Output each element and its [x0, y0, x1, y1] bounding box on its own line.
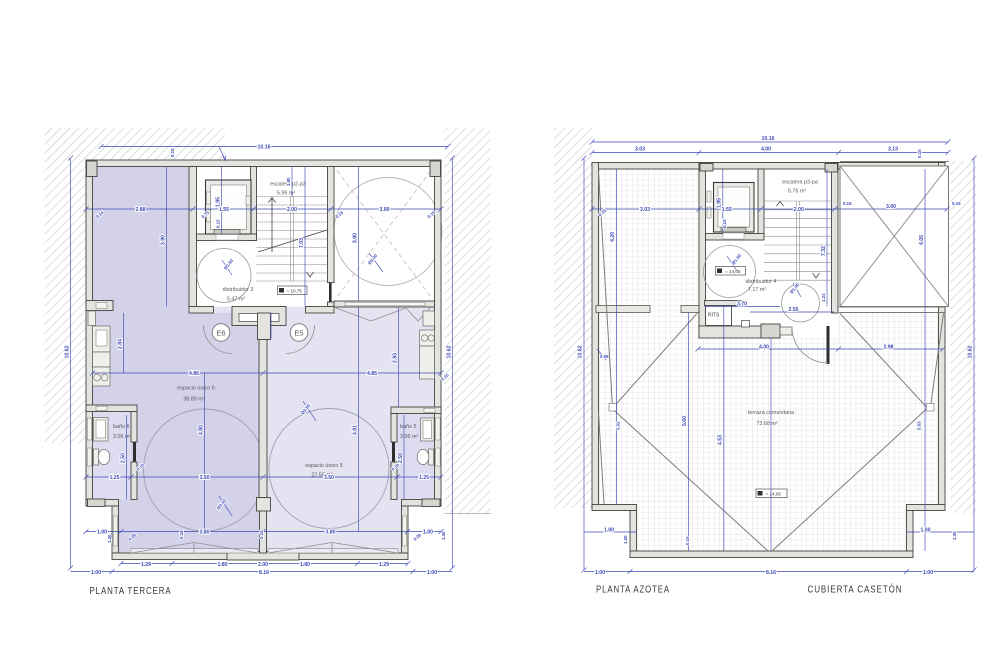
- svg-text:10.62: 10.62: [447, 345, 453, 358]
- svg-text:4.86: 4.86: [189, 371, 199, 377]
- svg-text:7.03: 7.03: [299, 238, 305, 248]
- svg-text:4.00: 4.00: [759, 345, 769, 351]
- svg-text:1.80: 1.80: [300, 562, 310, 568]
- svg-text:2.50: 2.50: [398, 453, 404, 463]
- svg-text:4.81: 4.81: [352, 425, 358, 435]
- svg-text:1.80: 1.80: [217, 562, 227, 568]
- svg-text:3.90: 3.90: [160, 235, 166, 245]
- svg-text:baño 5: baño 5: [400, 424, 417, 430]
- svg-text:2.00: 2.00: [258, 562, 268, 568]
- svg-text:1.30: 1.30: [952, 531, 957, 540]
- svg-text:2.00: 2.00: [794, 207, 804, 213]
- svg-text:2.93: 2.93: [392, 353, 398, 363]
- svg-text:2.00: 2.00: [287, 207, 297, 213]
- svg-text:5.53: 5.53: [917, 421, 922, 430]
- svg-text:= 14,05: = 14,05: [725, 269, 741, 274]
- svg-text:10.16: 10.16: [762, 136, 775, 142]
- svg-text:4.20: 4.20: [610, 232, 616, 242]
- svg-text:8.16: 8.16: [259, 570, 269, 576]
- svg-text:2.98: 2.98: [883, 345, 893, 351]
- svg-text:3.80: 3.80: [325, 529, 335, 535]
- svg-text:1.95: 1.95: [215, 197, 221, 207]
- svg-text:5.52: 5.52: [616, 421, 621, 430]
- svg-text:38.89 m²: 38.89 m²: [183, 397, 204, 403]
- svg-text:PLANTA AZOTEA: PLANTA AZOTEA: [596, 584, 670, 596]
- svg-text:0.15: 0.15: [216, 219, 221, 228]
- svg-text:3.13: 3.13: [888, 147, 898, 153]
- svg-text:2.88: 2.88: [135, 207, 145, 213]
- svg-text:10.62: 10.62: [65, 345, 71, 358]
- svg-text:5.76 m²: 5.76 m²: [788, 189, 806, 195]
- svg-text:escalera p3-pa: escalera p3-pa: [782, 180, 818, 186]
- svg-text:1.95: 1.95: [717, 198, 723, 208]
- svg-text:8.16: 8.16: [766, 570, 776, 576]
- svg-text:1.80: 1.80: [286, 177, 291, 186]
- svg-text:10.62: 10.62: [578, 345, 584, 358]
- svg-text:10.16: 10.16: [258, 145, 271, 151]
- svg-text:1.30: 1.30: [441, 531, 446, 540]
- svg-text:RITS: RITS: [708, 313, 720, 319]
- svg-text:1.55: 1.55: [722, 207, 732, 213]
- svg-text:3.70: 3.70: [737, 302, 747, 308]
- svg-text:7.17 m²: 7.17 m²: [748, 287, 766, 293]
- svg-text:2.55: 2.55: [788, 307, 798, 313]
- svg-text:3.00: 3.00: [379, 207, 389, 213]
- svg-text:1.00: 1.00: [97, 529, 107, 535]
- svg-text:1.00: 1.00: [923, 570, 933, 576]
- svg-text:1.00: 1.00: [423, 529, 433, 535]
- svg-text:73.68 m²: 73.68 m²: [756, 421, 777, 427]
- svg-text:3.03: 3.03: [640, 207, 650, 213]
- svg-text:2.84: 2.84: [117, 339, 123, 349]
- svg-text:4.05: 4.05: [919, 235, 925, 245]
- svg-text:4.80: 4.80: [198, 425, 204, 435]
- svg-text:distribuidor 4: distribuidor 4: [746, 279, 777, 285]
- svg-text:1.00: 1.00: [91, 570, 101, 576]
- svg-text:5.60: 5.60: [682, 416, 688, 426]
- svg-text:0.15: 0.15: [843, 201, 852, 206]
- svg-text:4.00: 4.00: [761, 147, 771, 153]
- svg-text:E6: E6: [216, 328, 225, 337]
- svg-text:1.25: 1.25: [109, 475, 119, 481]
- svg-text:baño 6: baño 6: [113, 424, 130, 430]
- svg-text:PLANTA TERCERA: PLANTA TERCERA: [90, 585, 172, 597]
- svg-text:2.50: 2.50: [120, 453, 126, 463]
- svg-text:0.15: 0.15: [170, 148, 175, 157]
- svg-text:0.15: 0.15: [952, 201, 961, 206]
- svg-text:3.03: 3.03: [635, 147, 645, 153]
- svg-text:1.00: 1.00: [595, 570, 605, 576]
- svg-text:= 14,05: = 14,05: [766, 492, 782, 497]
- svg-text:1.29: 1.29: [379, 562, 389, 568]
- svg-text:4.53: 4.53: [718, 435, 724, 445]
- svg-text:0.15: 0.15: [685, 536, 690, 545]
- svg-text:1.24: 1.24: [821, 293, 826, 302]
- svg-text:0.18: 0.18: [179, 530, 184, 539]
- svg-text:1.25: 1.25: [419, 475, 429, 481]
- svg-text:CUBIERTA CASETÓN: CUBIERTA CASETÓN: [808, 583, 903, 596]
- svg-text:1.29: 1.29: [141, 562, 151, 568]
- svg-text:3.00: 3.00: [886, 204, 896, 210]
- svg-text:4.85: 4.85: [367, 371, 377, 377]
- svg-text:3.06 m²: 3.06 m²: [400, 434, 418, 440]
- svg-text:0.15: 0.15: [259, 530, 264, 539]
- svg-text:espacio único 6: espacio único 6: [177, 386, 214, 392]
- svg-text:1.30: 1.30: [623, 535, 628, 544]
- svg-text:1.00: 1.00: [920, 527, 930, 533]
- svg-text:7.32: 7.32: [821, 246, 827, 256]
- svg-text:1.00: 1.00: [427, 570, 437, 576]
- svg-text:3.80: 3.80: [199, 529, 209, 535]
- svg-text:1.30: 1.30: [107, 534, 112, 543]
- svg-text:E5: E5: [294, 328, 303, 337]
- svg-text:= 10,75: = 10,75: [287, 289, 303, 294]
- svg-text:3.50: 3.50: [199, 475, 209, 481]
- svg-text:distribuidor 3: distribuidor 3: [223, 287, 254, 293]
- svg-text:0.15: 0.15: [917, 149, 922, 158]
- svg-text:10.62: 10.62: [968, 345, 974, 358]
- svg-text:3.90: 3.90: [352, 233, 358, 243]
- svg-text:5.47 m²: 5.47 m²: [227, 297, 245, 303]
- svg-text:espacio único 5: espacio único 5: [305, 463, 342, 469]
- svg-text:5.99 m²: 5.99 m²: [277, 191, 295, 197]
- svg-text:0.15: 0.15: [722, 219, 727, 228]
- svg-text:3.06 m²: 3.06 m²: [113, 434, 131, 440]
- svg-text:0.08: 0.08: [600, 354, 609, 359]
- svg-text:3.50: 3.50: [324, 475, 334, 481]
- svg-text:1.00: 1.00: [604, 527, 614, 533]
